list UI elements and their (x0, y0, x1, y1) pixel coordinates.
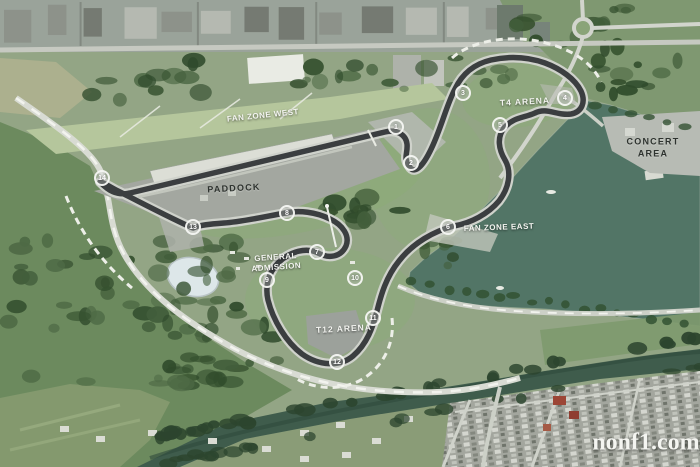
tree (406, 277, 417, 286)
tree (425, 281, 435, 288)
turn-marker-2: 2 (403, 155, 419, 171)
turn-marker-3: 3 (455, 85, 471, 101)
facility (236, 267, 240, 270)
tree (174, 71, 199, 84)
tree (230, 414, 252, 427)
tree (643, 114, 655, 120)
tree (389, 207, 410, 214)
tree (0, 315, 18, 329)
street (197, 2, 199, 46)
turn-marker-1: 1 (388, 119, 404, 135)
house (342, 452, 351, 458)
tree (680, 320, 689, 328)
red-roof (569, 411, 579, 419)
tree (476, 290, 489, 299)
tree (424, 408, 442, 416)
tree (346, 398, 358, 407)
tree (229, 302, 244, 312)
building (48, 5, 67, 35)
turn-marker-14: 14 (94, 170, 110, 186)
tree (545, 297, 553, 305)
tree (506, 292, 520, 299)
tree (14, 264, 28, 271)
tree (46, 259, 65, 272)
tree (162, 315, 173, 332)
tree (608, 106, 618, 113)
tree (625, 110, 638, 117)
tree (678, 123, 691, 130)
tree (113, 93, 127, 107)
building (201, 11, 231, 34)
tree (609, 6, 618, 13)
tree (663, 119, 672, 125)
tree (444, 262, 452, 270)
tree (205, 371, 227, 387)
tree (415, 60, 438, 77)
tree (681, 332, 696, 345)
tree (509, 364, 523, 374)
boat (496, 286, 504, 290)
tree (302, 77, 311, 83)
tree (595, 304, 606, 312)
tree (551, 385, 565, 392)
tree (445, 286, 455, 295)
tree (494, 293, 506, 302)
facility (230, 251, 235, 254)
tree (381, 79, 398, 87)
tree (303, 59, 324, 76)
scenery-svg (0, 0, 700, 467)
tree (634, 61, 642, 68)
tree (616, 85, 638, 96)
tree (524, 365, 542, 375)
building (162, 12, 192, 32)
tree (182, 364, 194, 374)
tree (9, 242, 33, 255)
tree (611, 79, 627, 85)
house (262, 446, 271, 452)
tree (323, 194, 347, 211)
turn-marker-9: 9 (259, 272, 275, 288)
tree (142, 321, 156, 332)
tree (561, 300, 570, 308)
red-roof (543, 424, 551, 431)
tree (82, 88, 101, 101)
tree (161, 426, 181, 440)
facility (256, 265, 261, 268)
building (362, 6, 393, 33)
tree (286, 404, 305, 414)
building (4, 10, 31, 43)
tree (516, 393, 527, 404)
circuit-map: FAN ZONE WESTPADDOCKT4 ARENACONCERT AREA… (0, 0, 700, 467)
tree (509, 19, 524, 32)
tree (190, 84, 212, 101)
tree (148, 264, 170, 281)
building (279, 7, 304, 40)
tree (312, 74, 328, 90)
tree (673, 53, 683, 69)
boat (546, 190, 556, 194)
tree (56, 302, 72, 309)
tree (155, 250, 177, 263)
tree (180, 352, 199, 362)
tree (22, 370, 41, 383)
tree (76, 377, 95, 386)
tree (323, 398, 338, 409)
tree (366, 64, 378, 76)
street (80, 2, 82, 46)
building (244, 7, 268, 32)
tree (203, 274, 211, 286)
tree (628, 342, 648, 355)
facility (350, 261, 355, 264)
paddock-structure (200, 195, 208, 201)
tree (662, 368, 681, 374)
turn-marker-5: 5 (492, 117, 508, 133)
tree (208, 420, 220, 428)
tree (661, 340, 676, 349)
northeast-road (582, 0, 583, 20)
tree (167, 374, 190, 389)
turn-marker-13: 13 (185, 219, 201, 235)
tree (200, 256, 213, 274)
tree (357, 211, 372, 229)
tree (176, 282, 191, 296)
tree (462, 287, 471, 296)
tree (662, 317, 672, 325)
paddock-structure (228, 190, 236, 196)
tree (88, 246, 112, 259)
house (300, 456, 309, 462)
tree (553, 357, 566, 367)
house (208, 438, 217, 444)
roundabout (574, 19, 592, 37)
tree (596, 82, 606, 92)
tree (335, 70, 343, 84)
tree (527, 299, 537, 305)
red-roof (553, 396, 566, 405)
concert-structure (625, 128, 635, 136)
building (406, 8, 437, 35)
tree (213, 360, 239, 371)
tree (210, 296, 226, 304)
building (447, 7, 469, 37)
tree (122, 300, 139, 309)
tree (7, 300, 27, 313)
tree (101, 277, 110, 288)
house (372, 438, 381, 444)
tree (505, 68, 518, 81)
house (96, 436, 105, 442)
tree (399, 86, 408, 92)
tree (22, 271, 38, 286)
street (315, 2, 317, 46)
turn-marker-7: 7 (309, 244, 325, 260)
turn-marker-4: 4 (557, 90, 573, 106)
tree (390, 417, 403, 427)
tree (239, 442, 252, 452)
turn-marker-11: 11 (365, 310, 381, 326)
building (125, 7, 157, 39)
tree (148, 85, 164, 95)
tree (188, 57, 199, 71)
tree (346, 59, 364, 71)
tree (360, 204, 372, 211)
tree (447, 252, 459, 262)
tree (48, 324, 59, 333)
tower-top (325, 204, 329, 208)
tree (480, 78, 493, 88)
building (84, 8, 102, 37)
tree (95, 77, 117, 85)
turn-marker-8: 8 (279, 205, 295, 221)
tree (304, 432, 316, 441)
tree (588, 102, 602, 110)
tree (162, 360, 176, 374)
tree (207, 306, 218, 323)
tree (66, 311, 91, 321)
tree (216, 270, 236, 282)
turn-marker-6: 6 (440, 219, 456, 235)
house (60, 426, 69, 432)
tree (241, 319, 267, 335)
tree (210, 447, 228, 458)
facility (244, 257, 249, 260)
house (336, 422, 345, 428)
tree (439, 244, 449, 251)
street (443, 2, 445, 46)
tree (652, 68, 670, 79)
tree (646, 315, 657, 324)
turn-marker-10: 10 (347, 270, 363, 286)
tree (168, 331, 183, 340)
tree (42, 233, 53, 247)
building (319, 12, 342, 34)
turn-marker-12: 12 (329, 354, 345, 370)
